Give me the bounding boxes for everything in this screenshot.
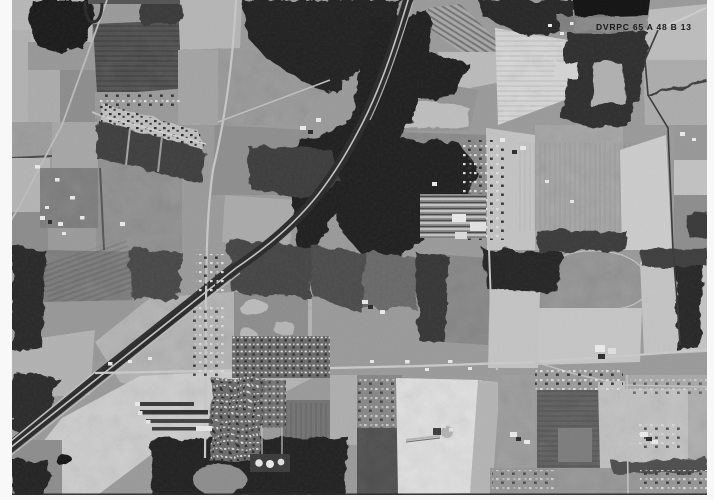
svg-text:DVRPC 65 A 48 B 13: DVRPC 65 A 48 B 13: [596, 22, 691, 32]
